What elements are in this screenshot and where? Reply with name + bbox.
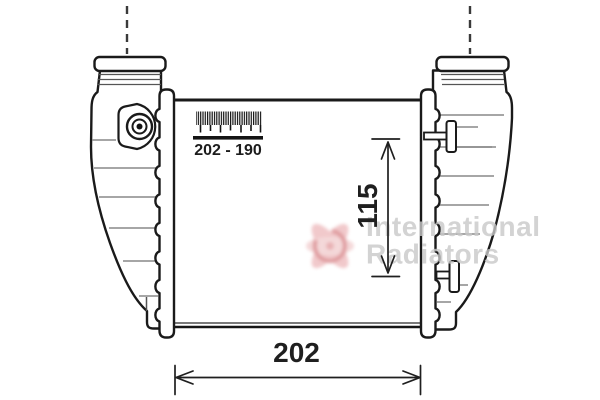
ruler-baseline	[193, 136, 263, 140]
left-hose-port	[95, 57, 166, 71]
watermark-line1: International	[366, 211, 541, 242]
dimension-label-202: 202	[273, 337, 320, 368]
right-hose-port	[437, 57, 509, 71]
pin-top-crossbar	[447, 121, 457, 152]
boss-center	[137, 124, 143, 130]
mounting-boss	[119, 104, 156, 149]
ruler-hatch-bar	[196, 112, 262, 126]
scale-range-label: 202 - 190	[194, 142, 262, 159]
intercooler-product-image: International Radiators 202 - 190 115 20…	[0, 0, 600, 400]
watermark-line2: Radiators	[366, 239, 500, 270]
intercooler-technical-drawing: International Radiators 202 - 190 115 20…	[0, 0, 600, 400]
pin-top-stem	[424, 133, 448, 140]
dimension-label-115: 115	[352, 183, 383, 228]
